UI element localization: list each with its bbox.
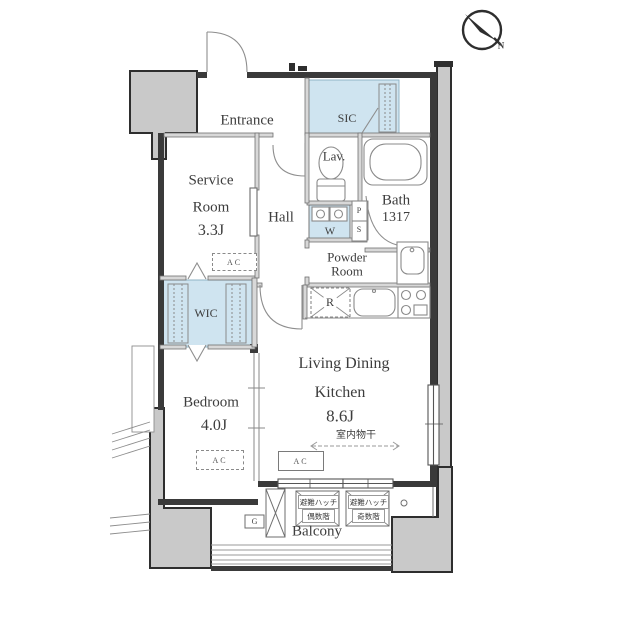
floor-plan: Entrance SIC Service Room 3.3J Hall Lav.…: [0, 0, 640, 639]
ldk-balcony-window-2: [343, 479, 393, 488]
right-band-cap: [434, 61, 453, 67]
stove: [398, 287, 430, 318]
top-wall-ticks: [289, 63, 307, 71]
powder-room-label-2: Room: [331, 265, 363, 278]
kitchen-sink: [354, 289, 395, 316]
ac-box-ldk: AC: [278, 451, 324, 471]
hatch-odd-label-1: 避難ハッチ: [348, 495, 389, 509]
balcony-rail-lines: [211, 545, 392, 564]
bedroom-size: 4.0J: [201, 418, 227, 434]
refrigerator-label: R: [326, 296, 334, 308]
balcony-partition-board: [266, 489, 285, 537]
wic-label: WIC: [194, 307, 217, 319]
ac-box-service-room: AC: [212, 253, 257, 271]
service-room-sliding-door: [250, 188, 257, 236]
hall-door-arc: [273, 143, 305, 176]
compass-north-label: N: [498, 42, 505, 51]
indoor-drying-label: 室内物干: [336, 431, 376, 441]
ldk-label-1: Living Dining: [298, 356, 389, 372]
ldk-size: 8.6J: [326, 408, 354, 425]
balcony-label: Balcony: [292, 525, 342, 540]
bathtub: [364, 139, 427, 185]
hall-label: Hall: [268, 211, 294, 226]
vanity-sink: [397, 242, 428, 284]
entrance-door-arc: [207, 32, 247, 72]
ldk-label-2: Kitchen: [315, 385, 366, 401]
bath-size: 1317: [382, 211, 410, 225]
powder-room-label-1: Powder: [327, 251, 367, 264]
lavatory-label: Lav.: [323, 150, 346, 163]
bath-label: Bath: [382, 194, 410, 209]
bedroom-ldk-sliding-partition: [248, 353, 265, 481]
entrance-label: Entrance: [220, 114, 273, 129]
sic-label: SIC: [338, 112, 357, 124]
service-room-label-2: Room: [193, 201, 230, 216]
pipe-shaft-s: S: [357, 226, 361, 234]
gas-meter-label: G: [252, 518, 258, 526]
service-room-label-1: Service: [189, 174, 234, 189]
washer-faucets: [312, 207, 347, 221]
compass-north-icon: [463, 11, 501, 49]
service-room-size: 3.3J: [198, 223, 224, 239]
wic-folding-door-marker-top: [188, 263, 206, 279]
indoor-drying-rail: [311, 442, 399, 450]
ac-box-bedroom: AC: [196, 450, 244, 470]
balcony-drain: [401, 500, 407, 506]
bedroom-label: Bedroom: [183, 396, 239, 411]
ldk-balcony-window-1: [278, 479, 343, 488]
adjacent-structure-lines: [110, 346, 154, 534]
ldk-door-arc: [260, 285, 302, 329]
hatch-odd-label-2: 奇数階: [352, 509, 385, 523]
floor-plan-drawing: [0, 0, 640, 639]
neighbor-slab: [132, 346, 154, 432]
washer-label: W: [325, 227, 335, 238]
hatch-even-label-2: 偶数階: [302, 509, 335, 523]
wic-folding-door-marker-bottom: [188, 345, 206, 361]
pipe-shaft-p: P: [357, 207, 361, 215]
hatch-even-label-1: 避難ハッチ: [298, 495, 339, 509]
